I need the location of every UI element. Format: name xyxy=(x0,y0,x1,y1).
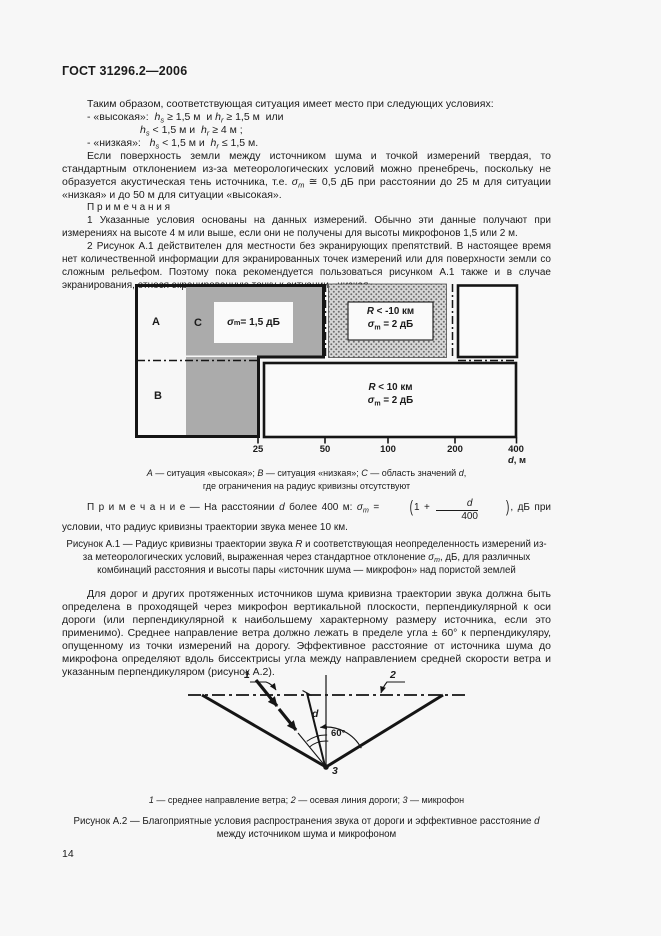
microphone-point xyxy=(323,764,329,770)
axis-tick-400: 400 xyxy=(501,444,531,455)
figure-a1-caption: Рисунок А.1 — Радиус кривизны траектории… xyxy=(66,538,547,577)
figure-a1-legend-line2: где ограничения на радиус кривизны отсут… xyxy=(62,480,551,493)
page-number: 14 xyxy=(62,848,74,860)
distance-d-label: d xyxy=(312,708,318,720)
axis-tick-25: 25 xyxy=(243,444,273,455)
callout-label-2: 2 xyxy=(390,669,396,681)
axis-tick-50: 50 xyxy=(310,444,340,455)
document-page: ГОСТ 31296.2—2006 Таким образом, соответ… xyxy=(0,0,661,936)
figure-a1: А С В σm = 1,5 дБ R < -10 км σm = 2 дБ R… xyxy=(135,283,520,479)
figure-a2: 1 2 3 d 60° xyxy=(180,671,480,792)
bottom-box-label: R < 10 км σm = 2 дБ xyxy=(313,381,468,407)
axis-tick-100: 100 xyxy=(373,444,403,455)
region-label-c: С xyxy=(187,317,209,329)
condition-high-line2: hs < 1,5 м и hr ≥ 4 м ; xyxy=(140,124,243,137)
axis-unit-label: d, м xyxy=(495,455,539,466)
hatched-box-line1: R < -10 км xyxy=(349,305,432,318)
figure-a1-drawing xyxy=(135,283,520,451)
figure-a1-legend-line1: А — ситуация «высокая»; В — ситуация «ни… xyxy=(62,467,551,480)
axis-tick-200: 200 xyxy=(440,444,470,455)
paragraph-intro: Таким образом, соответствующая ситуация … xyxy=(62,98,551,111)
document-header: ГОСТ 31296.2—2006 xyxy=(62,64,187,78)
hatched-box-line2: σm = 2 дБ xyxy=(349,318,432,331)
note-1: 1 Указанные условия основаны на данных и… xyxy=(62,215,551,241)
figure-a2-drawing xyxy=(180,671,480,789)
callout-leaders xyxy=(250,682,405,693)
bottom-box-line2: σm = 2 дБ xyxy=(313,394,468,407)
angle-60-label: 60° xyxy=(331,728,345,739)
axis-tick-marks xyxy=(258,438,517,444)
figure-a2-caption: Рисунок А.2 — Благоприятные условия расп… xyxy=(66,815,547,841)
hatched-box-label: R < -10 км σm = 2 дБ xyxy=(349,305,432,331)
notes-title: П р и м е ч а н и я xyxy=(87,202,170,213)
region-label-a: А xyxy=(145,316,167,328)
paragraph-hard-ground: Если поверхность земли между источником … xyxy=(62,150,551,202)
paragraph-roads: Для дорог и других протяженных источнико… xyxy=(62,588,551,679)
condition-high-line1: - «высокая»: hs ≥ 1,5 м и hr ≥ 1,5 м или xyxy=(87,111,284,124)
sigma-15-box: σm = 1,5 дБ xyxy=(214,302,293,343)
region-top-right-box xyxy=(458,286,517,358)
region-label-b: В xyxy=(147,390,169,402)
figure-a1-legend: А — ситуация «высокая»; В — ситуация «ни… xyxy=(62,467,551,493)
callout-label-3: 3 xyxy=(332,765,338,777)
figure-a2-legend: 1 — среднее направление ветра; 2 — осева… xyxy=(62,794,551,807)
figure-a1-note: П р и м е ч а н и е — На расстоянии d бо… xyxy=(62,499,551,535)
callout-label-1: 1 xyxy=(244,669,250,681)
condition-low-line: - «низкая»: hs < 1,5 м и hr ≤ 1,5 м. xyxy=(87,137,258,150)
bottom-box-line1: R < 10 км xyxy=(313,381,468,394)
